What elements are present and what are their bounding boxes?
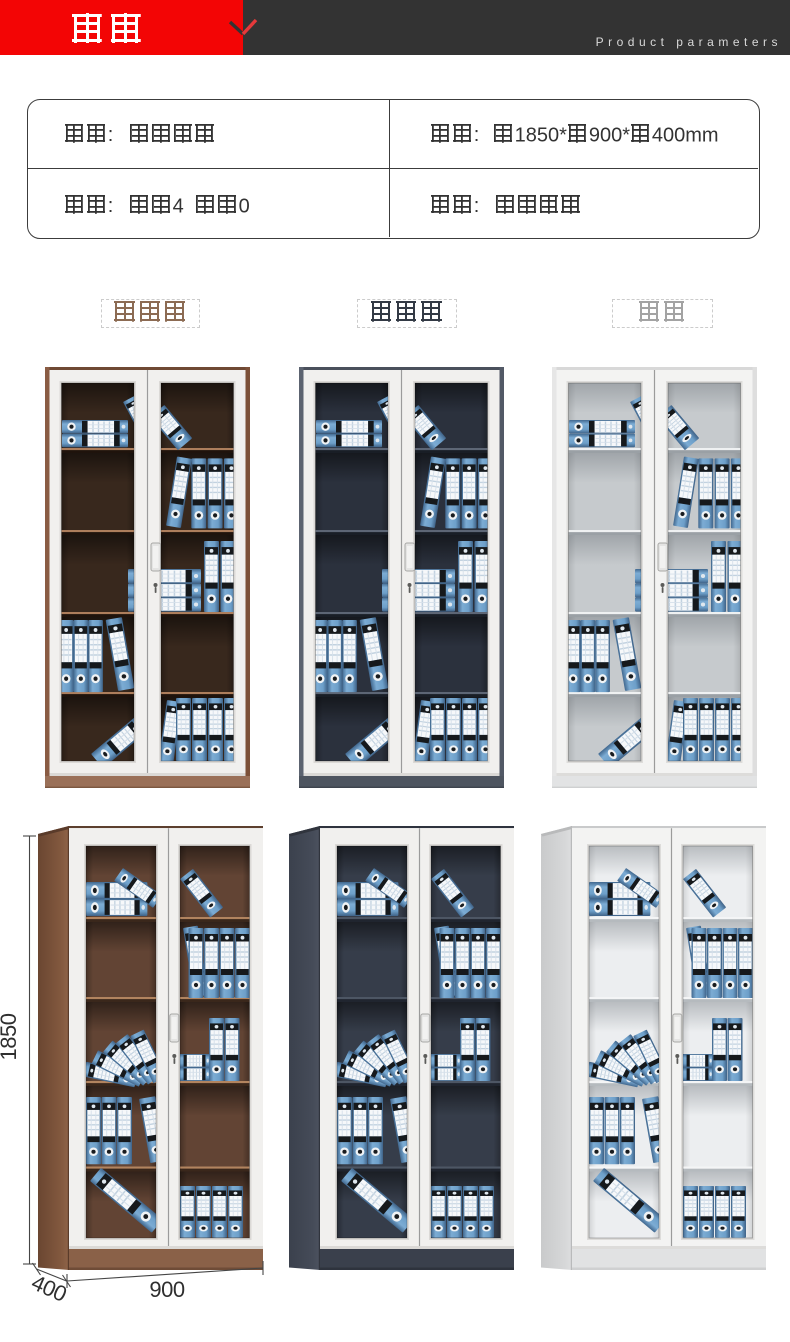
svg-text:400: 400 xyxy=(28,1270,71,1307)
svg-text:1850: 1850 xyxy=(0,1013,21,1060)
svg-text:900: 900 xyxy=(149,1277,184,1302)
